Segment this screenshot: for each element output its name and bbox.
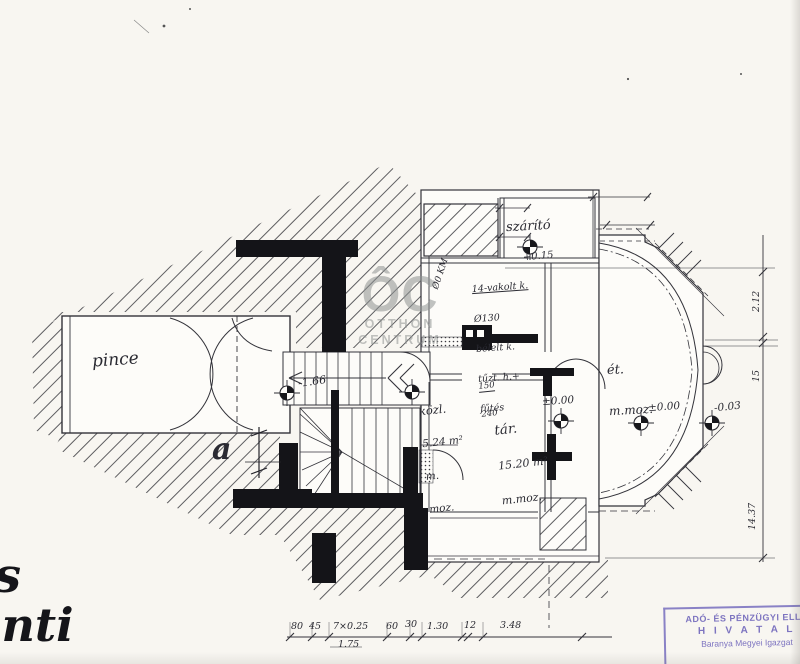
dim-130: 1.30 (427, 622, 448, 632)
chimney-note-3: bélelt k. (476, 341, 533, 355)
floorplan-drawing (0, 0, 800, 664)
room-finish-kozl-2: moz. (429, 501, 471, 516)
room-area-tar: 15.20 m² (498, 456, 549, 473)
scan-artifacts (134, 8, 742, 80)
stair-winder (300, 408, 420, 495)
page-edge-shadow-right (790, 0, 800, 664)
room-label-pince: pince (91, 350, 139, 371)
dim-7x025: 7×0.25 (333, 622, 368, 632)
dim-60: 60 (386, 622, 398, 632)
room-finish-kozl-1: m. (425, 468, 467, 483)
dim-1437: 14.37 (748, 503, 758, 530)
room-finish-tar: m.moz. (501, 490, 552, 507)
room-label-kozl: közl. (418, 401, 460, 417)
stamp-line-2: H I V A T A L (672, 623, 800, 637)
dim-45: 45 (309, 622, 321, 632)
room-label-tar: tár. (494, 419, 545, 438)
room-area-kozl: 5.24 m² (422, 435, 464, 450)
chimney-note-1: 14-vakolt k. (472, 281, 529, 295)
dim-348: 3.48 (500, 621, 521, 631)
dim-212: 2.12 (752, 291, 762, 312)
dim-15: 15 (752, 370, 762, 382)
stamp-line-3: Baranya Megyei Igazgat (672, 636, 800, 649)
section-letter: a (212, 434, 231, 466)
room-label-et: ét. (607, 362, 652, 378)
door-width: 150 (478, 381, 495, 393)
chimney-note-2: Ø130 (474, 311, 531, 325)
margin-text-fragment-top: s (0, 548, 21, 604)
flue-label-2: KM (437, 257, 451, 275)
page-edge-shadow-bottom (0, 652, 800, 664)
dim-30: 30 (405, 620, 417, 630)
room-finish-et: m.moz. (609, 403, 654, 418)
dim-12: 12 (464, 621, 476, 631)
level-tar: ±0.00 (542, 395, 575, 408)
flue-label-1: Ø0 (432, 275, 446, 291)
room-block-et: ét. m.moz. (605, 335, 655, 445)
stamp-line-1: ADÓ- ÉS PÉNZÜGYI ELLE (671, 611, 800, 624)
level-et: ±0.00 (648, 401, 681, 414)
room-label-szarito: szárító (506, 219, 551, 235)
dim-175: 1.75 (338, 640, 359, 650)
pince-room (62, 316, 290, 433)
margin-text-fragment-bottom: inti (0, 598, 74, 652)
dim-80: 80 (291, 622, 303, 632)
scanned-floorplan-page: ÔC OTTHON CENTRUM pince -1.66 szárító +0… (0, 0, 800, 664)
